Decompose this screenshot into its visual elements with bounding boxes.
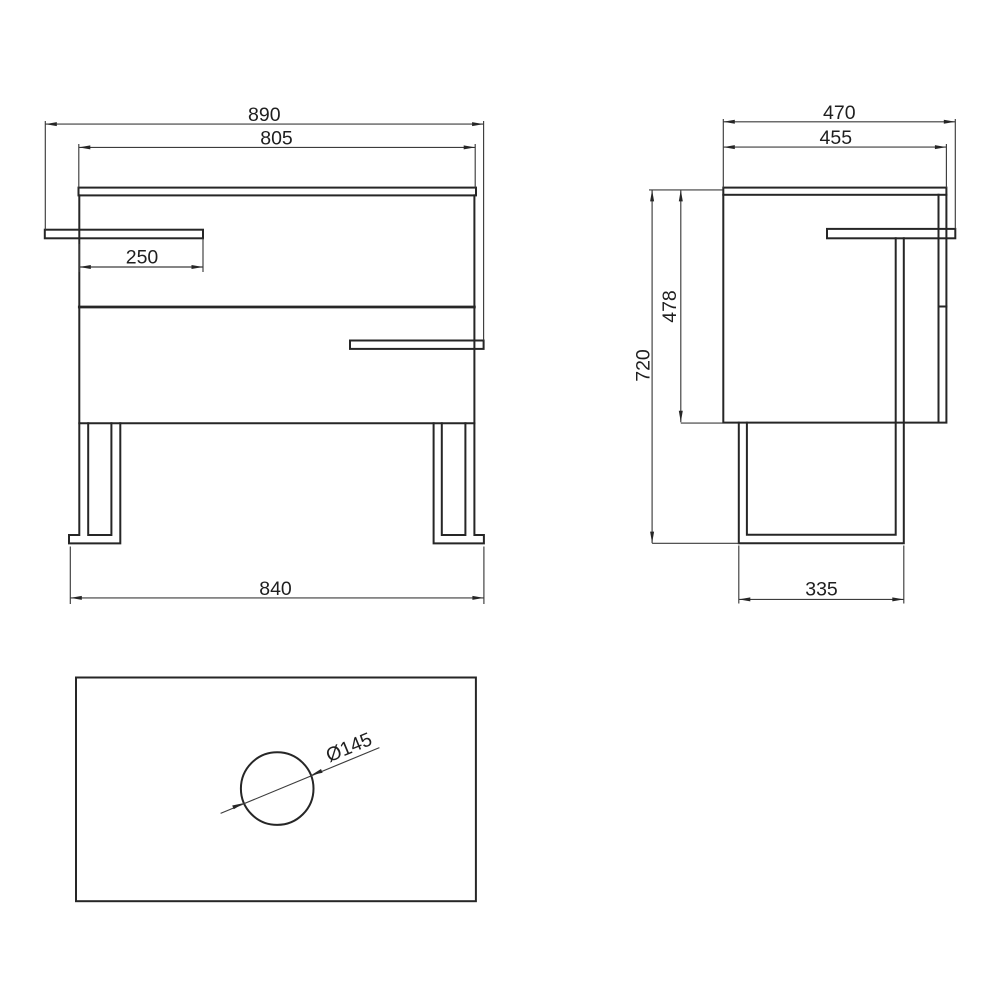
svg-text:720: 720: [632, 349, 654, 382]
svg-text:840: 840: [259, 578, 292, 600]
svg-text:478: 478: [659, 290, 681, 323]
svg-text:250: 250: [126, 247, 159, 269]
svg-text:335: 335: [805, 579, 838, 601]
svg-text:890: 890: [248, 104, 281, 126]
svg-text:Ø145: Ø145: [323, 728, 376, 767]
svg-text:470: 470: [823, 102, 856, 124]
svg-text:805: 805: [260, 128, 293, 150]
svg-text:455: 455: [820, 127, 853, 149]
